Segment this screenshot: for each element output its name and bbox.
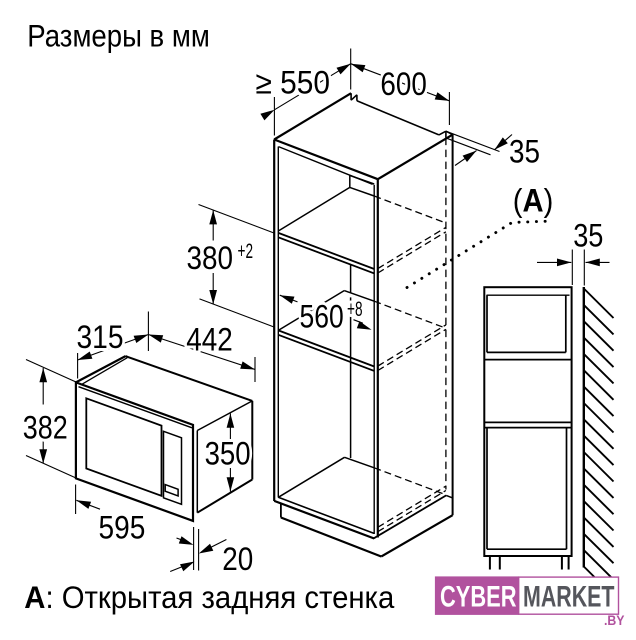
svg-text:35: 35 xyxy=(509,134,540,170)
svg-text:CYBER: CYBER xyxy=(440,580,517,613)
svg-text:+8: +8 xyxy=(347,297,363,321)
svg-text:Размеры в мм: Размеры в мм xyxy=(27,17,210,53)
svg-text:382: 382 xyxy=(23,410,68,446)
svg-text:.BY: .BY xyxy=(604,612,625,628)
svg-text:442: 442 xyxy=(186,321,233,357)
svg-text:595: 595 xyxy=(99,510,146,546)
svg-text:315: 315 xyxy=(77,319,124,355)
svg-text:A: Открытая задняя стенка: A: Открытая задняя стенка xyxy=(24,579,394,615)
svg-text:380: 380 xyxy=(187,240,234,276)
svg-text:≥ 550: ≥ 550 xyxy=(256,65,331,101)
svg-text:35: 35 xyxy=(573,217,603,253)
svg-text:MARKET: MARKET xyxy=(523,580,615,613)
svg-text:20: 20 xyxy=(222,541,253,577)
svg-text:350: 350 xyxy=(205,435,251,471)
svg-text:(A): (A) xyxy=(513,183,554,219)
svg-text:560: 560 xyxy=(300,298,344,334)
svg-text:600: 600 xyxy=(380,66,426,102)
svg-text:+2: +2 xyxy=(238,239,254,263)
